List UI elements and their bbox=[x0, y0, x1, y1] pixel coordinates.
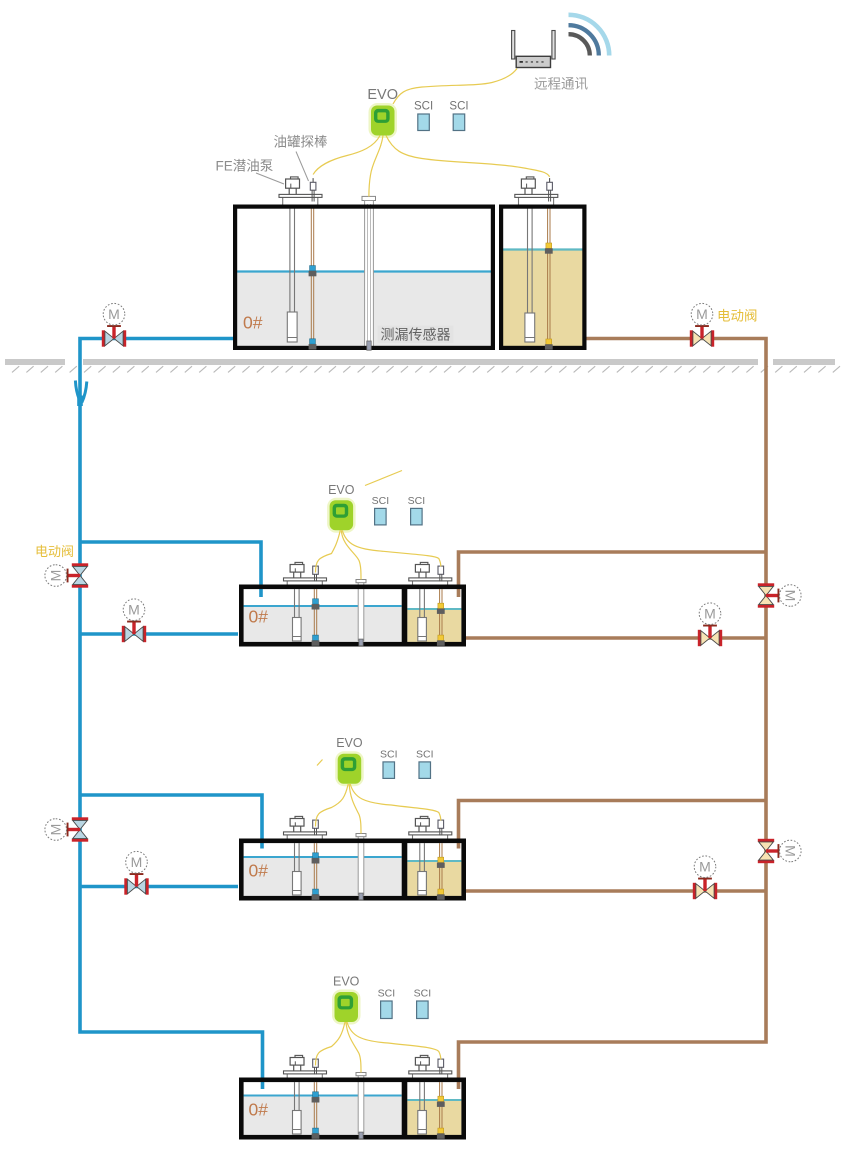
svg-text:0#: 0# bbox=[249, 861, 269, 881]
svg-text:电动阀: 电动阀 bbox=[717, 309, 758, 324]
svg-text:EVO: EVO bbox=[333, 975, 360, 989]
svg-text:0#: 0# bbox=[249, 1100, 269, 1120]
svg-text:M: M bbox=[783, 845, 799, 857]
svg-text:M: M bbox=[47, 570, 63, 582]
svg-text:M: M bbox=[696, 306, 708, 322]
svg-text:油罐探棒: 油罐探棒 bbox=[274, 135, 328, 150]
svg-text:EVO: EVO bbox=[336, 736, 363, 750]
svg-text:EVO: EVO bbox=[328, 483, 355, 497]
svg-text:FE潜油泵: FE潜油泵 bbox=[216, 159, 274, 174]
svg-text:M: M bbox=[699, 859, 711, 875]
svg-text:远程通讯: 远程通讯 bbox=[534, 77, 588, 92]
svg-text:M: M bbox=[108, 306, 120, 322]
svg-text:0#: 0# bbox=[243, 313, 263, 333]
svg-text:电动阀: 电动阀 bbox=[35, 544, 74, 559]
svg-text:M: M bbox=[47, 824, 63, 836]
svg-text:M: M bbox=[704, 606, 716, 622]
svg-text:0#: 0# bbox=[249, 607, 269, 627]
svg-text:SCI: SCI bbox=[449, 101, 468, 113]
svg-text:SCI: SCI bbox=[372, 495, 390, 507]
svg-text:SCI: SCI bbox=[414, 988, 432, 1000]
svg-text:SCI: SCI bbox=[378, 988, 396, 1000]
svg-text:SCI: SCI bbox=[408, 495, 426, 507]
svg-text:SCI: SCI bbox=[416, 748, 434, 760]
svg-text:EVO: EVO bbox=[367, 87, 398, 103]
svg-text:M: M bbox=[131, 854, 143, 870]
svg-text:M: M bbox=[783, 590, 799, 602]
svg-text:SCI: SCI bbox=[414, 101, 433, 113]
svg-text:M: M bbox=[128, 602, 140, 618]
svg-text:SCI: SCI bbox=[380, 748, 398, 760]
svg-text:测漏传感器: 测漏传感器 bbox=[381, 327, 451, 343]
